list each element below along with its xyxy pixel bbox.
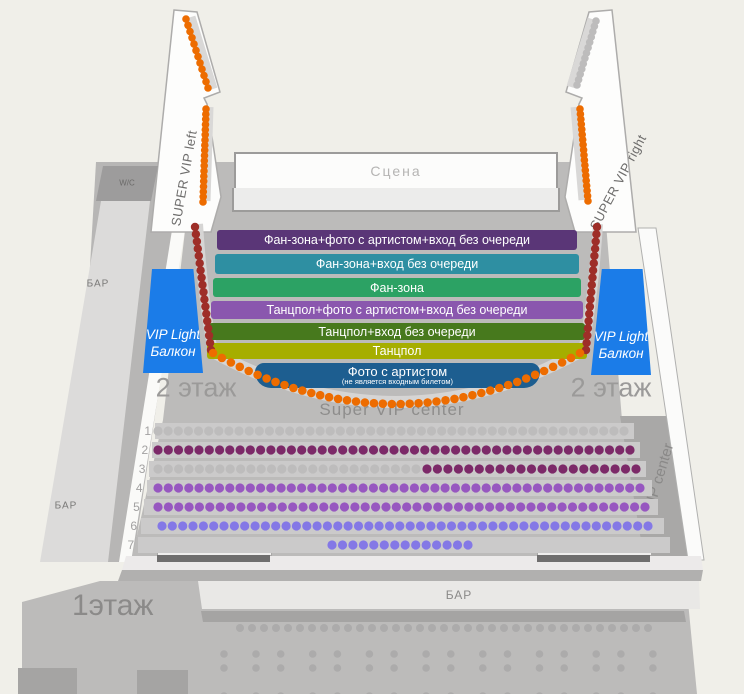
zone-fan-entry[interactable]: Фан-зона+вход без очереди xyxy=(215,254,579,274)
stage-front xyxy=(232,188,560,212)
zone-photo[interactable]: Фото с артистом (не является входным бил… xyxy=(255,363,540,388)
stage-label: Сцена xyxy=(370,163,421,179)
wc-label: W/C xyxy=(119,179,135,188)
seat-row-strip xyxy=(138,537,670,553)
vip-light-label: VIP Light xyxy=(146,327,200,344)
seat-row-strip xyxy=(152,442,640,458)
zone-label: Танцпол+вход без очереди xyxy=(318,325,475,339)
bar-counter-shadow-left xyxy=(157,555,270,562)
seat-row-number: 2 xyxy=(134,443,148,457)
floor1-label: 1этаж xyxy=(72,589,154,623)
floor1-patch-right xyxy=(137,670,188,694)
zone-label: Танцпол+фото с артистом+вход без очереди xyxy=(267,303,528,317)
bar-label-upper-left: БАР xyxy=(87,279,110,290)
zone-label: Танцпол xyxy=(373,344,422,358)
zone-fan-photo-entry[interactable]: Фан-зона+фото с артистом+вход без очеред… xyxy=(217,230,577,250)
floor1-patch-left xyxy=(18,668,77,694)
seat-row-number: 7 xyxy=(120,538,134,552)
bar-counter-shadow-right xyxy=(537,555,650,562)
zone-sublabel: (не является входным билетом) xyxy=(342,378,453,386)
seat-row-strip xyxy=(155,423,634,439)
seat-row-strip xyxy=(147,480,652,496)
zone-label: Фан-зона xyxy=(370,281,424,295)
super-vip-center-label: Super VIP center xyxy=(319,400,464,420)
bar-label-lower-left: БАР xyxy=(55,501,78,512)
vip-light-label: VIP Light xyxy=(594,329,648,346)
zone-dance-entry[interactable]: Танцпол+вход без очереди xyxy=(209,323,585,340)
floor2-label-right: 2 этаж xyxy=(571,373,652,404)
seat-row-strip xyxy=(144,499,658,515)
seat-row-strip xyxy=(141,518,664,534)
floor2-label-left: 2 этаж xyxy=(156,373,237,404)
stage: Сцена xyxy=(234,152,558,190)
zone-label: Фото с артистом xyxy=(348,365,447,379)
floor-edge-face xyxy=(118,570,703,581)
zone-label: Фан-зона+фото с артистом+вход без очеред… xyxy=(264,233,530,247)
zone-label: Фан-зона+вход без очереди xyxy=(316,257,478,271)
left-wing-lining2 xyxy=(206,107,209,201)
floor1-dark-strip xyxy=(201,611,686,622)
vip-light-label2: Балкон xyxy=(150,344,195,361)
zone-fan[interactable]: Фан-зона xyxy=(213,278,581,297)
seat-row-number: 6 xyxy=(123,519,137,533)
zone-dance-photo-entry[interactable]: Танцпол+фото с артистом+вход без очереди xyxy=(211,301,583,319)
vip-light-balcony-left[interactable]: VIP Light Балкон xyxy=(143,269,203,373)
vip-light-label2: Балкон xyxy=(598,346,643,363)
bar-label-floor1: БАР xyxy=(446,588,473,602)
seat-row-strip xyxy=(149,461,646,477)
zone-dance[interactable]: Танцпол xyxy=(207,343,587,359)
seat-row-number: 4 xyxy=(129,481,143,495)
seat-row-number: 1 xyxy=(137,424,151,438)
seat-row-number: 5 xyxy=(126,500,140,514)
seat-row-number: 3 xyxy=(131,462,145,476)
venue-seat-map: Сцена Фан-зона+фото с артистом+вход без … xyxy=(0,0,744,694)
